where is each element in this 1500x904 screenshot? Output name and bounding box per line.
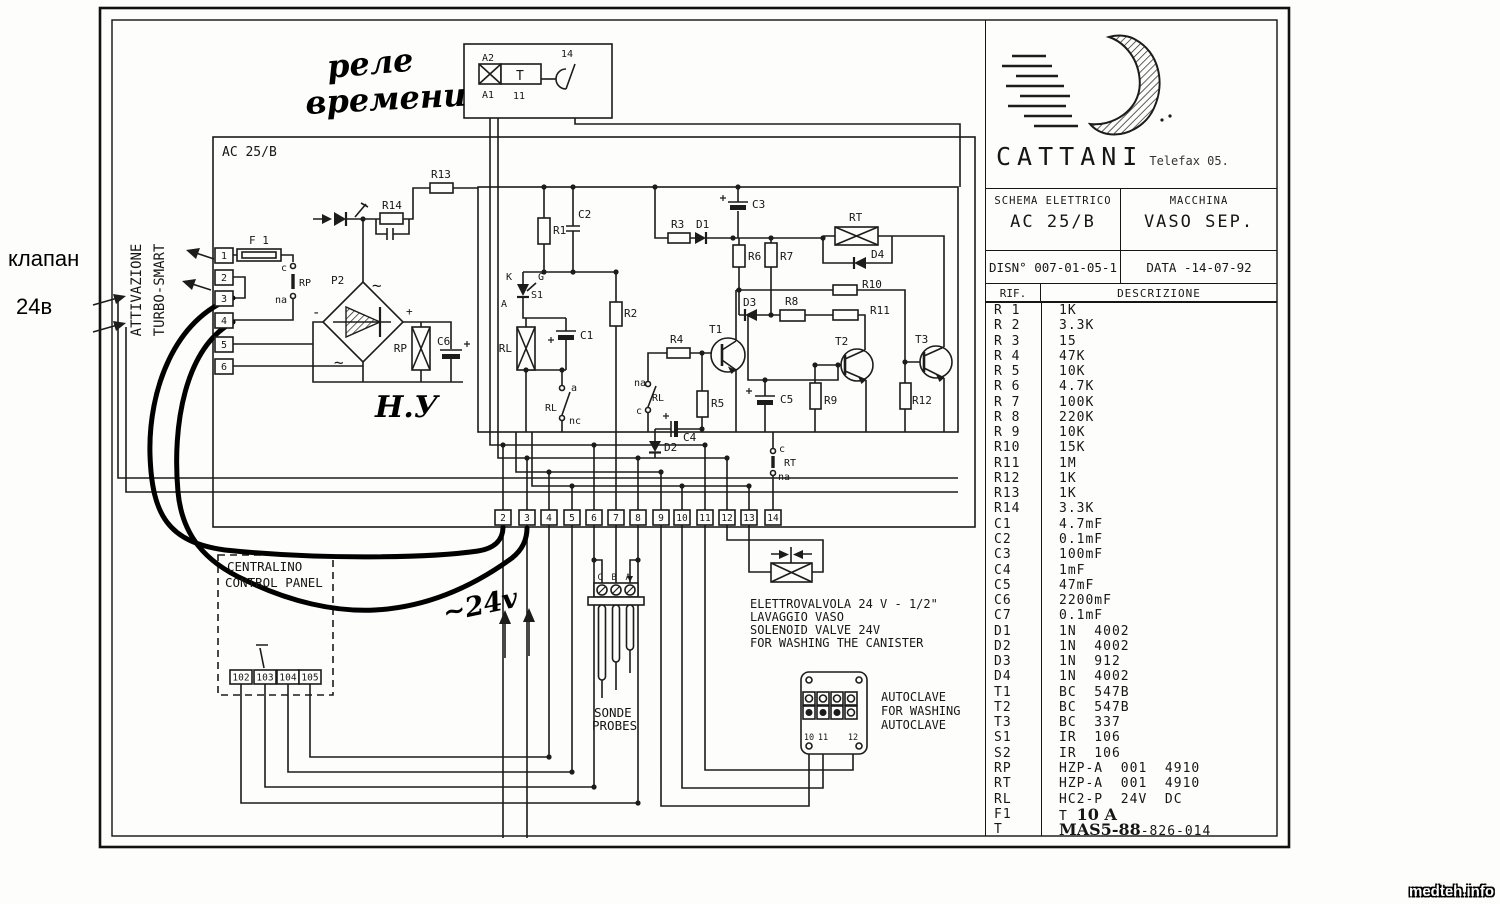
parts-row: C41mF — [986, 563, 1277, 578]
parts-row: R 11K — [986, 303, 1277, 318]
parts-row: RLHC2-P 24V DC — [986, 792, 1277, 807]
p2-label: P2 — [331, 274, 344, 287]
parts-row: RPHZP-A 001 4910 — [986, 761, 1277, 776]
r12-label: R12 — [912, 394, 932, 407]
relay-14: 14 — [561, 49, 573, 60]
bridge-ac-bottom: ~ — [334, 353, 344, 372]
part-desc: 2200mF — [1041, 593, 1112, 608]
ref-header: RIF. — [986, 284, 1041, 301]
bottom-terminal-3-label: 3 — [524, 513, 530, 524]
bottom-terminal-4-label: 4 — [546, 513, 552, 524]
d4-label: D4 — [871, 248, 885, 261]
valve-caption-line3: SOLENOID VALVE 24V — [750, 623, 880, 637]
parts-row: R 8220K — [986, 410, 1277, 425]
relay-a1: A1 — [482, 90, 494, 101]
d1-label: D1 — [696, 218, 709, 231]
part-ref: R13 — [986, 486, 1041, 501]
bottom-terminal-2-label: 2 — [500, 513, 506, 524]
panel-name-line1: CENTRALINO — [227, 559, 302, 574]
part-ref: R 5 — [986, 364, 1041, 379]
rt-coil — [835, 227, 878, 245]
parts-row: R 64.7K — [986, 379, 1277, 394]
autoclave-caption-line2: FOR WASHING — [881, 704, 960, 718]
part-desc: HZP-A 001 4910 — [1041, 761, 1200, 776]
schema-label: SCHEMA ELETTRICO — [986, 195, 1120, 207]
parts-row: R 510K — [986, 364, 1277, 379]
d3-label: D3 — [743, 296, 756, 309]
part-desc: IR 106 — [1041, 746, 1121, 761]
rp-pressure-contact — [291, 264, 296, 299]
rp-coil — [412, 327, 430, 370]
watermark: medteh.info — [1409, 883, 1494, 900]
part-ref: C3 — [986, 547, 1041, 562]
left-terminal-4-label: 4 — [221, 316, 227, 327]
rt-contact — [771, 449, 776, 476]
part-desc: 1M — [1041, 456, 1077, 471]
parts-row: D31N 912 — [986, 654, 1277, 669]
rl-contact-a: a — [571, 383, 577, 394]
terminals-layer: 1234562345678910111213141021031041051011… — [215, 248, 858, 743]
part-ref: S2 — [986, 746, 1041, 761]
part-desc: 100K — [1041, 395, 1094, 410]
part-ref: C1 — [986, 517, 1041, 532]
bottom-terminal-5-label: 5 — [569, 513, 575, 524]
parts-row: D21N 4002 — [986, 639, 1277, 654]
rl-coil — [517, 327, 535, 370]
cattani-logo — [994, 34, 1219, 146]
s1-g: G — [538, 272, 544, 283]
parts-row: R 910K — [986, 425, 1277, 440]
parts-row: S1IR 106 — [986, 730, 1277, 745]
f1-label: F 1 — [249, 234, 269, 247]
part-ref: R10 — [986, 440, 1041, 455]
parts-row: C14.7mF — [986, 517, 1277, 532]
rt-contact-c: c — [779, 444, 785, 455]
part-ref: R 9 — [986, 425, 1041, 440]
part-ref: T3 — [986, 715, 1041, 730]
parts-row: R121K — [986, 471, 1277, 486]
t2-label: T2 — [835, 335, 848, 348]
rt-coil-label: RT — [849, 211, 863, 224]
part-desc: IR 106 — [1041, 730, 1121, 745]
sonde-caption-line2: PROBES — [592, 718, 637, 733]
parts-row: R1015K — [986, 440, 1277, 455]
part-desc: HZP-A 001 4910 — [1041, 776, 1200, 791]
title-block: CATTANITelefax 05. SCHEMA ELETTRICO AC 2… — [985, 20, 1277, 836]
part-ref: D2 — [986, 639, 1041, 654]
left-terminal-6-label: 6 — [221, 362, 227, 373]
rt-contact-label: RT — [784, 458, 796, 469]
part-desc: BC 547B — [1041, 700, 1130, 715]
parts-row: R143.3K — [986, 501, 1277, 516]
schema-value: AC 25/B — [986, 212, 1120, 232]
r6-label: R6 — [748, 250, 761, 263]
valve-caption-line4: FOR WASHING THE CANISTER — [750, 636, 924, 650]
part-desc: 0.1mF — [1041, 608, 1103, 623]
part-desc: 1mF — [1041, 563, 1085, 578]
rp-contact-na: na — [275, 295, 287, 306]
bridge-plus: + — [406, 305, 413, 318]
panel-terminal-104-label: 104 — [279, 673, 296, 684]
parts-row: T3BC 337 — [986, 715, 1277, 730]
panel-terminal-103-label: 103 — [256, 673, 273, 684]
part-ref: T1 — [986, 685, 1041, 700]
part-desc: 47mF — [1041, 578, 1094, 593]
input-diode — [322, 212, 346, 226]
bottom-terminal-6-label: 6 — [591, 513, 597, 524]
part-ref: T2 — [986, 700, 1041, 715]
rl-contact-label: RL — [545, 403, 557, 414]
part-desc: 1K — [1041, 303, 1077, 318]
bottom-terminal-14-label: 14 — [767, 513, 779, 524]
part-desc: 1N 912 — [1041, 654, 1121, 669]
t1-label: T1 — [709, 323, 722, 336]
probe-contact-A: A — [625, 573, 630, 583]
parts-row: RTHZP-A 001 4910 — [986, 776, 1277, 791]
part-desc: 4.7mF — [1041, 517, 1103, 532]
bridge-minus: - — [312, 305, 320, 321]
part-desc: BC 547B — [1041, 685, 1130, 700]
part-ref: D1 — [986, 624, 1041, 639]
handwritten-note: MAS5-88 — [1059, 820, 1141, 839]
part-desc: 1N 4002 — [1041, 639, 1130, 654]
parts-row: C62200mF — [986, 593, 1277, 608]
bottom-terminal-8-label: 8 — [635, 513, 641, 524]
transistor-t2 — [841, 349, 873, 384]
r9-label: R9 — [824, 394, 837, 407]
parts-row: C547mF — [986, 578, 1277, 593]
part-desc: 100mF — [1041, 547, 1103, 562]
parts-row: R 7100K — [986, 395, 1277, 410]
rele-note-line2: времени — [304, 76, 467, 122]
part-desc: 47K — [1041, 349, 1085, 364]
machine-value: VASO SEP. — [1121, 212, 1277, 232]
labels-layer: AC 25/BATTIVAZIONETURBO-SMARTрелевремени… — [129, 41, 960, 733]
drawing-no-label: DISN° — [989, 260, 1027, 275]
part-ref: R 7 — [986, 395, 1041, 410]
part-ref: D4 — [986, 669, 1041, 684]
r1-label: R1 — [553, 224, 566, 237]
part-desc: 1N 4002 — [1041, 624, 1130, 639]
brand-suffix: Telefax 05. — [1149, 154, 1228, 168]
attivazione-label: ATTIVAZIONE — [129, 244, 145, 337]
s1-k: K — [506, 272, 512, 283]
bottom-terminal-12-label: 12 — [721, 513, 732, 524]
c3-label: C3 — [752, 198, 765, 211]
rp-contact-c: c — [281, 263, 287, 274]
s1-a: A — [501, 299, 507, 310]
part-ref: R 6 — [986, 379, 1041, 394]
part-desc: 220K — [1041, 410, 1094, 425]
bridge-rectifier-p2 — [323, 282, 403, 362]
parts-row: C20.1mF — [986, 532, 1277, 547]
part-desc: 1K — [1041, 471, 1077, 486]
bottom-terminal-7-label: 7 — [613, 513, 619, 524]
part-desc: 10K — [1041, 425, 1085, 440]
relay-a2: A2 — [482, 53, 494, 64]
parts-row: T2BC 547B — [986, 700, 1277, 715]
na-rl-c-na: na — [634, 378, 646, 389]
part-desc: 15 — [1041, 334, 1077, 349]
rp-contact-label: RP — [299, 278, 311, 289]
part-ref: C5 — [986, 578, 1041, 593]
r4-label: R4 — [670, 333, 684, 346]
bottom-terminal-9-label: 9 — [658, 513, 664, 524]
rt-contact-na: na — [778, 472, 790, 483]
autoclave-caption-line1: AUTOCLAVE — [881, 690, 946, 704]
r5-label: R5 — [711, 397, 724, 410]
part-ref: R12 — [986, 471, 1041, 486]
date-label: DATA — [1146, 260, 1176, 275]
c5-label: C5 — [780, 393, 793, 406]
autoclave-caption-line3: AUTOCLAVE — [881, 718, 946, 732]
valve-caption-line2: LAVAGGIO VASO — [750, 610, 844, 624]
autoclave-terminal-11: 11 — [818, 733, 828, 743]
r14-label: R14 — [382, 199, 402, 212]
relay-11: 11 — [513, 91, 525, 102]
part-ref: C6 — [986, 593, 1041, 608]
panel-terminal-105-label: 105 — [301, 673, 318, 684]
na-rl-c-label: RL — [652, 393, 664, 404]
part-ref: R 3 — [986, 334, 1041, 349]
part-ref: R11 — [986, 456, 1041, 471]
transistor-t3 — [920, 346, 952, 382]
parts-row: C70.1mF — [986, 608, 1277, 623]
r10-label: R10 — [862, 278, 882, 291]
r3-label: R3 — [671, 218, 684, 231]
part-ref: C2 — [986, 532, 1041, 547]
parts-row: R 315 — [986, 334, 1277, 349]
r8-label: R8 — [785, 295, 798, 308]
r7-label: R7 — [780, 250, 793, 263]
rl-coil-label: RL — [499, 342, 513, 355]
probe-contact-B: B — [611, 573, 616, 583]
parts-row: R 447K — [986, 349, 1277, 364]
part-ref: D3 — [986, 654, 1041, 669]
relay-t: T — [516, 69, 524, 84]
bridge-ac-top: ~ — [372, 276, 382, 295]
c1-label: C1 — [580, 329, 593, 342]
autoclave-terminal-10: 10 — [804, 733, 814, 743]
part-desc: 4.7K — [1041, 379, 1094, 394]
part-desc: 15K — [1041, 440, 1085, 455]
part-ref: RP — [986, 761, 1041, 776]
r13-label: R13 — [431, 168, 451, 181]
parts-row: TMAS5-88-826-014 — [986, 822, 1277, 837]
part-ref: C7 — [986, 608, 1041, 623]
panel-terminal-102-label: 102 — [232, 673, 249, 684]
parts-row: R131K — [986, 486, 1277, 501]
bottom-terminal-11-label: 11 — [699, 513, 711, 524]
parts-row: T1BC 547B — [986, 685, 1277, 700]
part-ref: R 2 — [986, 318, 1041, 333]
bottom-terminal-10-label: 10 — [676, 513, 688, 524]
rl-contact-nc: nc — [569, 416, 581, 427]
valve-annotation-text: клапан — [8, 246, 79, 272]
part-desc: 10K — [1041, 364, 1085, 379]
part-ref: F1 — [986, 807, 1041, 822]
valve-caption-line1: ELETTROVALVOLA 24 V - 1/2" — [750, 597, 938, 611]
part-desc: MAS5-88-826-014 — [1041, 822, 1211, 837]
handdrawn-jumpers — [150, 298, 527, 610]
desc-header: DESCRIZIONE — [1041, 284, 1277, 301]
left-terminal-5-label: 5 — [221, 340, 227, 351]
panel-name-line2: CONTROL PANEL — [225, 575, 323, 590]
c6-label: C6 — [437, 335, 450, 348]
autoclave-terminal-12: 12 — [848, 733, 858, 743]
parts-row: D11N 4002 — [986, 624, 1277, 639]
s1-label: S1 — [531, 290, 543, 301]
part-desc: 1N 4002 — [1041, 669, 1130, 684]
part-desc: 0.1mF — [1041, 532, 1103, 547]
part-desc: 3.3K — [1041, 501, 1094, 516]
machine-label: MACCHINA — [1121, 195, 1277, 207]
part-desc: 1K — [1041, 486, 1077, 501]
parts-row: D41N 4002 — [986, 669, 1277, 684]
part-ref: RT — [986, 776, 1041, 791]
left-terminal-2-label: 2 — [221, 273, 227, 284]
part-ref: T — [986, 822, 1041, 837]
hy-note: Н.У — [374, 390, 441, 425]
parts-row: R 23.3K — [986, 318, 1277, 333]
turbo-smart-label: TURBO-SMART — [152, 243, 168, 336]
parts-row: C3100mF — [986, 547, 1277, 562]
part-desc: BC 337 — [1041, 715, 1121, 730]
valve-voltage-annotation: 24в — [16, 294, 52, 320]
drawing-no: 007-01-05-1 — [1034, 260, 1117, 275]
transistor-t1 — [711, 338, 745, 374]
part-ref: C4 — [986, 563, 1041, 578]
probe-contact-C: C — [597, 573, 602, 583]
parts-row: S2IR 106 — [986, 746, 1277, 761]
part-ref: S1 — [986, 730, 1041, 745]
part-ref: R 8 — [986, 410, 1041, 425]
part-ref: R14 — [986, 501, 1041, 516]
part-ref: RL — [986, 792, 1041, 807]
date-value: -14-07-92 — [1184, 260, 1252, 275]
d2-label: D2 — [664, 441, 677, 454]
na-rl-c-c: c — [636, 406, 642, 417]
fuse-f1 — [237, 249, 281, 261]
left-terminal-3-label: 3 — [221, 294, 227, 305]
rp-coil-label: RP — [394, 342, 408, 355]
brand-name: CATTANI — [996, 142, 1143, 171]
part-ref: R 1 — [986, 303, 1041, 318]
t3-label: T3 — [915, 333, 928, 346]
part-ref: R 4 — [986, 349, 1041, 364]
r11-label: R11 — [870, 304, 890, 317]
ac-block-label: AC 25/B — [222, 145, 277, 160]
bottom-terminal-13-label: 13 — [743, 513, 754, 524]
r2-label: R2 — [624, 307, 637, 320]
left-terminal-1-label: 1 — [221, 251, 227, 262]
part-desc: 3.3K — [1041, 318, 1094, 333]
parts-list: R 11KR 23.3KR 315R 447KR 510KR 64.7KR 71… — [986, 303, 1277, 836]
c2-label: C2 — [578, 208, 591, 221]
parts-row: R111M — [986, 456, 1277, 471]
c4-label: C4 — [683, 431, 697, 444]
